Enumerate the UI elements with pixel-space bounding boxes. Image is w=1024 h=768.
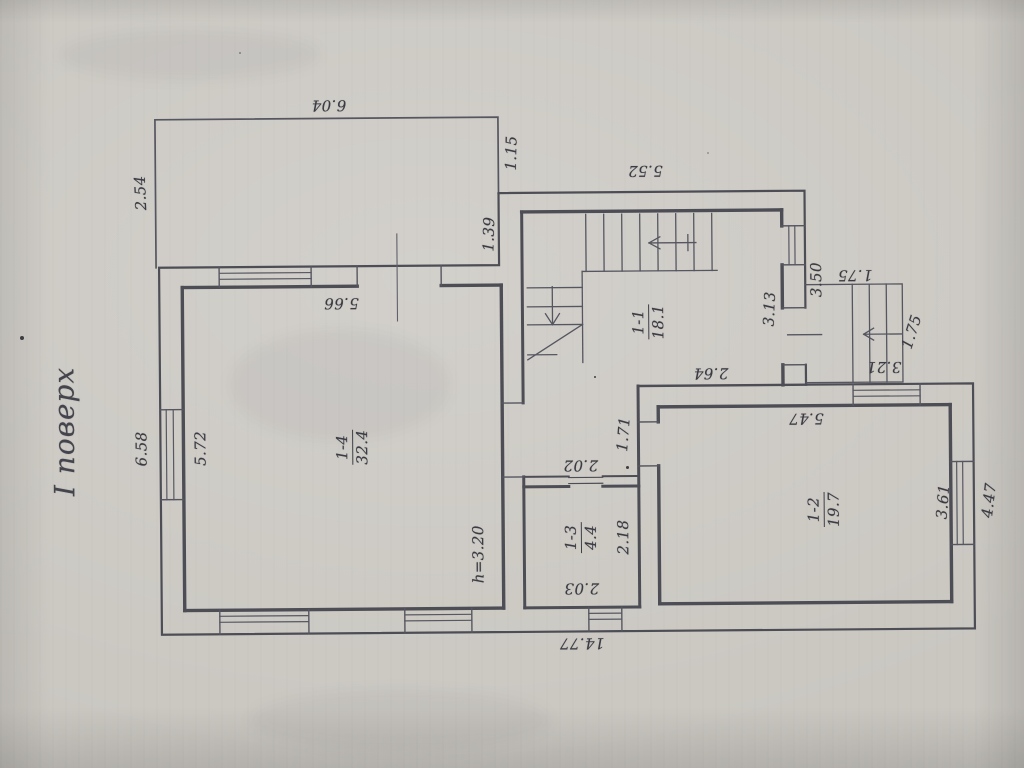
room-label: 1-432.4 [334, 430, 371, 465]
room-area: 19.7 [824, 492, 842, 527]
dimension-label: 5.47 [789, 410, 824, 428]
dimension-label: 1.15 [502, 135, 521, 170]
dimension-label: 14.77 [559, 634, 604, 652]
dimension-label: 6.04 [311, 96, 346, 114]
dimension-labels-layer: І поверх 6.042.541.151.395.525.666.585.7… [0, 0, 1024, 768]
ink-speck [707, 152, 709, 154]
room-number: 1-4 [334, 430, 353, 465]
dimension-label: 1.75 [898, 312, 926, 351]
scanned-floor-plan-page: І поверх 6.042.541.151.395.525.666.585.7… [0, 0, 1024, 768]
ink-speck [594, 376, 596, 378]
room-area: 4.4 [582, 522, 600, 553]
room-area: 32.4 [353, 430, 371, 465]
dimension-label: 2.54 [131, 175, 150, 211]
room-area: 18.1 [649, 304, 667, 339]
room-label: 1-219.7 [806, 492, 843, 527]
dimension-label: 5.66 [324, 294, 359, 312]
floor-plan-drawing: І поверх 6.042.541.151.395.525.666.585.7… [0, 0, 1024, 768]
dimension-label: 2.02 [563, 456, 598, 474]
dimension-label: 6.58 [132, 431, 150, 466]
dimension-label: 3.50 [807, 262, 825, 297]
dimension-label: 5.52 [628, 162, 663, 180]
dimension-label: 5.72 [191, 431, 209, 466]
ink-speck [239, 52, 241, 54]
dimension-label: 2.03 [564, 579, 599, 597]
dimension-label: 2.18 [614, 520, 632, 555]
dimension-label: 1.39 [479, 216, 498, 251]
dimension-label: h=3.20 [469, 525, 487, 583]
room-label: 1-118.1 [630, 304, 667, 339]
floor-title: І поверх [47, 367, 81, 497]
dimension-label: 3.21 [866, 358, 901, 376]
room-number: 1-1 [630, 304, 649, 339]
ink-speck [20, 336, 24, 340]
dimension-label: 2.64 [693, 364, 728, 382]
dimension-label: 1.71 [613, 416, 634, 452]
room-number: 1-2 [806, 492, 825, 527]
dimension-label: 1.75 [838, 266, 873, 284]
dimension-label: 3.13 [760, 291, 780, 327]
room-label: 1-34.4 [563, 522, 600, 554]
dimension-label: 4.47 [978, 482, 1000, 519]
room-number: 1-3 [563, 522, 582, 554]
dimension-label: 3.61 [933, 483, 954, 519]
ink-speck [626, 466, 629, 469]
